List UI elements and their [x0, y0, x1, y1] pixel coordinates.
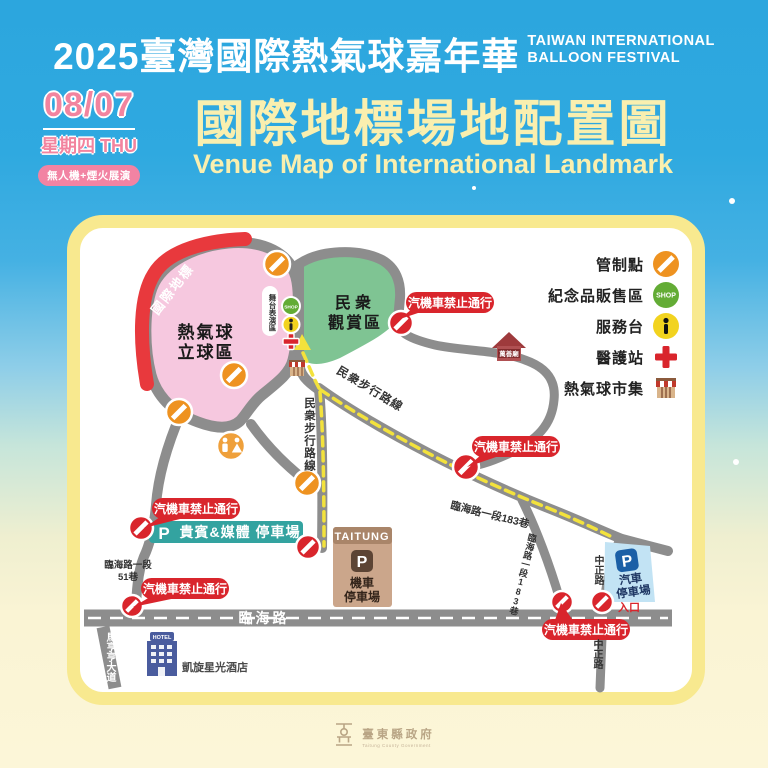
hotel-icon: HOTEL [147, 632, 177, 676]
temple-label: 萬善廟 [499, 349, 519, 358]
no-vehicle-bubble: 汽機車禁止通行 [133, 578, 229, 607]
no-entry-icon [652, 250, 680, 278]
legend: 管制點 紀念品販售區 SHOP 服務台 醫護站 熱氣球市集 [536, 250, 680, 405]
no-entry-badge [129, 516, 153, 540]
no-vehicle-bubble-text: 汽機車禁止通行 [408, 295, 492, 310]
no-vehicle-bubble-text: 汽機車禁止通行 [474, 439, 558, 454]
linhai-road-label: 臨海路 [239, 610, 290, 626]
control-point-badge [294, 470, 320, 496]
no-entry-badge [121, 595, 143, 617]
viewing-area-label-line1: 民衆 [335, 293, 375, 312]
legend-item-control-point: 管制點 [536, 250, 680, 278]
entrance-label: 入口 [618, 601, 640, 614]
shop-icon-text: SHOP [656, 293, 676, 300]
taitung-label: TAITUNG [334, 531, 389, 543]
control-point-badge [166, 399, 192, 425]
road-lane183 [319, 388, 668, 551]
stage-area-label: 舞台表演區 [262, 286, 278, 336]
no-vehicle-bubble: 汽機車禁止通行 [400, 292, 494, 319]
control-point-badge [264, 251, 290, 277]
legend-item-service: 服務台 [536, 312, 680, 340]
temple-icon: 萬善廟 [492, 332, 526, 361]
legend-label: 醫護站 [596, 347, 644, 368]
motorcycle-parking: TAITUNG P 機車 停車場 [333, 527, 392, 607]
shop-point-icon: SHOP [282, 297, 300, 315]
medical-icon [652, 343, 680, 371]
legend-label: 服務台 [596, 316, 644, 337]
legend-label: 管制點 [596, 254, 644, 275]
info-icon [652, 312, 680, 340]
zhongzheng-upper-label: 中正路 [590, 555, 605, 585]
control-point-badge [221, 362, 247, 388]
legend-item-market: 熱氣球市集 [536, 374, 680, 402]
market-point-icon [289, 360, 305, 376]
hotel-sign: HOTEL [153, 635, 172, 641]
lane51-label-line2: 51巷 [118, 571, 139, 583]
legend-item-souvenir: 紀念品販售區 SHOP [536, 281, 680, 309]
lane51-label-line1: 臨海路一段 [104, 559, 152, 571]
legend-label: 熱氣球市集 [564, 378, 644, 399]
walk-route-vertical-label: 民衆步行路線 [301, 397, 317, 472]
moto-parking-line1: 機車 [350, 575, 374, 590]
no-entry-badge [453, 454, 479, 480]
no-vehicle-bubble-text: 汽機車禁止通行 [143, 581, 227, 596]
zhongzheng-lower-label: 中正路 [589, 639, 604, 669]
moto-parking-p: P [357, 554, 368, 571]
vip-parking-label: 貴賓&媒體 停車場 [180, 524, 301, 540]
vip-parking-p: P [158, 524, 169, 543]
info-point-icon [283, 316, 300, 333]
restroom-icon [217, 432, 245, 460]
no-vehicle-bubble-text: 汽機車禁止通行 [544, 622, 628, 637]
no-vehicle-bubble-text: 汽機車禁止通行 [154, 501, 238, 516]
legend-item-medical: 醫護站 [536, 343, 680, 371]
legend-label: 紀念品販售區 [548, 285, 644, 306]
balloon-area-label-line1: 熱氣球 [178, 322, 235, 342]
shop-point-text: SHOP [284, 305, 298, 311]
vip-media-parking: P 貴賓&媒體 停車場 [149, 521, 303, 543]
no-entry-badge [591, 591, 613, 613]
no-entry-badge [296, 535, 320, 559]
market-icon [652, 374, 680, 402]
viewing-area-label-line2: 觀賞區 [328, 313, 382, 332]
shop-icon: SHOP [652, 281, 680, 309]
mahengheng-road-label: 馬亨亨大道 [102, 632, 117, 682]
hotel-label: 凱旋星光酒店 [182, 660, 248, 674]
moto-parking-line2: 停車場 [344, 589, 380, 604]
balloon-area-label-line2: 立球區 [178, 342, 235, 362]
poster: { "header": { "title_zh": "2025臺灣國際熱氣球嘉年… [0, 0, 768, 768]
